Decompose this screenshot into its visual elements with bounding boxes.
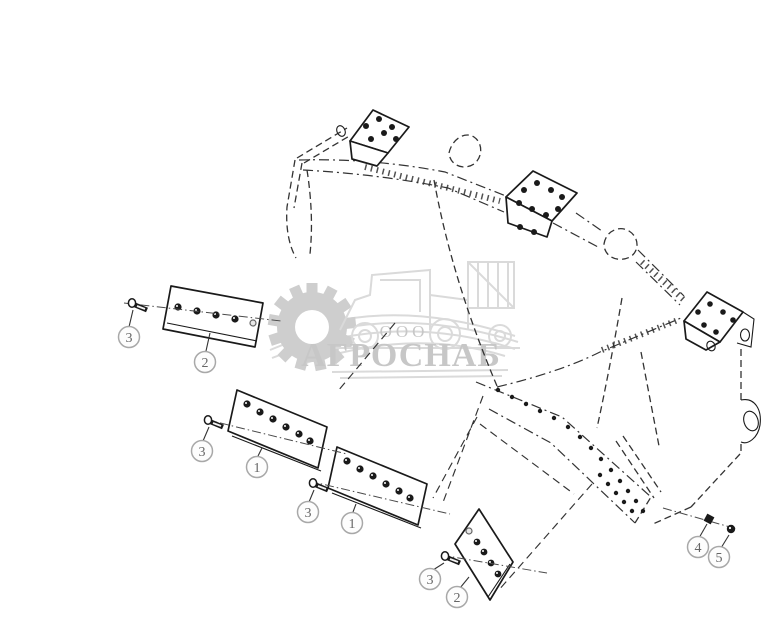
hook-eye bbox=[741, 409, 760, 432]
wear-plate-1-upper bbox=[228, 390, 327, 471]
watermark-underline bbox=[340, 376, 502, 378]
wear-plate-2-bottom bbox=[455, 509, 513, 600]
mounted-wear-pad-middle bbox=[506, 171, 577, 237]
callout-label: 1 bbox=[254, 461, 261, 476]
nut-icon-5 bbox=[721, 525, 735, 548]
callout-balloon-3d: 3 bbox=[420, 569, 441, 590]
mounted-wear-pad-right bbox=[684, 292, 754, 352]
watermark-company-name: АГРОСНАБ bbox=[301, 337, 501, 374]
callout-label: 2 bbox=[454, 591, 461, 606]
watermark: ООО АГРОСНАБ bbox=[268, 262, 520, 378]
bolt-icon-3a bbox=[128, 299, 147, 327]
callout-label: 3 bbox=[126, 331, 133, 346]
bolt-icon-3c bbox=[309, 479, 328, 502]
pad-eye bbox=[335, 124, 347, 137]
wear-plate-1-lower bbox=[328, 447, 427, 528]
callout-balloon-3b: 3 bbox=[192, 441, 213, 462]
callout-label: 3 bbox=[427, 573, 434, 588]
wear-plate-2-top bbox=[163, 286, 263, 347]
bolt-icon-3d bbox=[433, 552, 460, 570]
callout-balloon-5: 5 bbox=[709, 547, 730, 568]
cutting-edge-band bbox=[476, 382, 661, 523]
callout-label: 2 bbox=[202, 356, 209, 371]
bolt-icon-3b bbox=[203, 416, 223, 441]
callout-balloon-3a: 3 bbox=[119, 327, 140, 348]
bracket-eye bbox=[741, 329, 750, 341]
callout-balloon-1a: 1 bbox=[247, 457, 268, 478]
callout-label: 4 bbox=[695, 541, 702, 556]
callout-balloon-3c: 3 bbox=[298, 502, 319, 523]
callout-label: 1 bbox=[349, 517, 356, 532]
bolt-icon-4 bbox=[699, 514, 714, 538]
callout-balloon-2b: 2 bbox=[447, 587, 468, 608]
callout-balloon-4: 4 bbox=[688, 537, 709, 558]
rail-opening bbox=[604, 229, 637, 260]
callout-label: 5 bbox=[716, 551, 723, 566]
bucket-right-edge bbox=[653, 349, 761, 524]
rail-opening bbox=[449, 135, 481, 167]
parts-diagram-page: ООО АГРОСНАБ bbox=[0, 0, 781, 641]
exploded-parts-diagram: ООО АГРОСНАБ bbox=[0, 0, 781, 641]
callout-label: 3 bbox=[305, 506, 312, 521]
callout-label: 3 bbox=[199, 445, 206, 460]
callout-balloon-2a: 2 bbox=[195, 352, 216, 373]
callout-balloon-1b: 1 bbox=[342, 513, 363, 534]
